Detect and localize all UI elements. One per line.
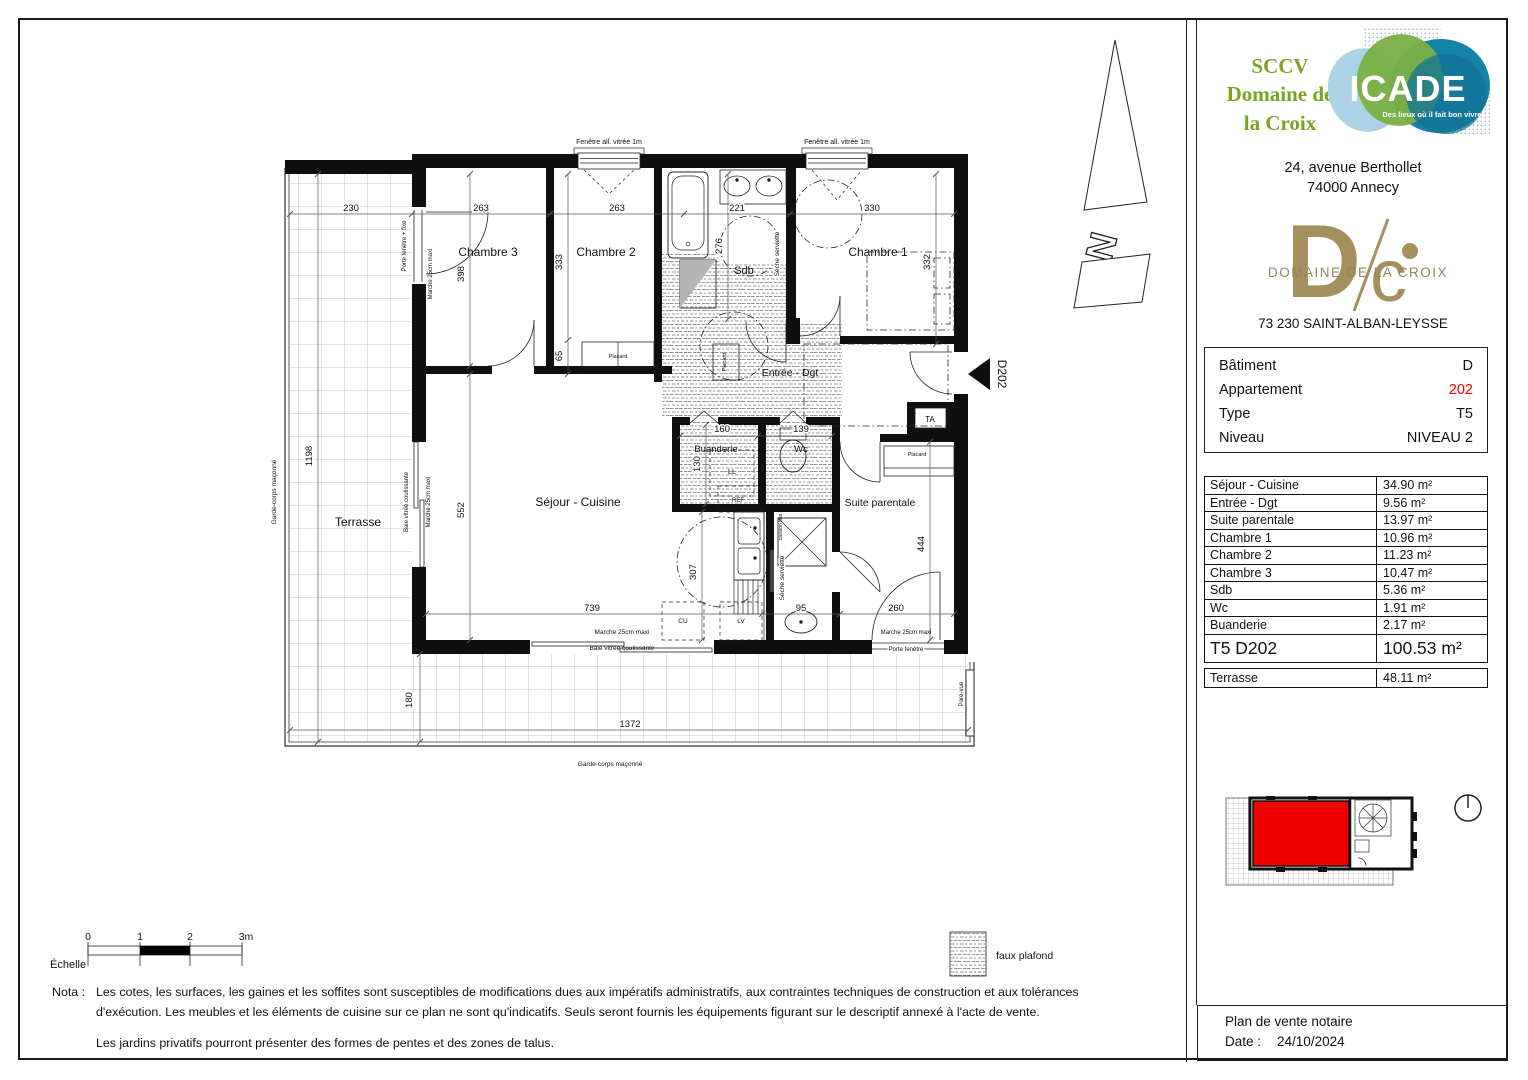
annotation-lv: LV (737, 618, 745, 625)
double-sink-counter (720, 170, 786, 204)
dim: 307 (688, 564, 699, 580)
area-label: Entrée - Dgt (1205, 495, 1377, 512)
unit-info-row: Appartement202 (1205, 378, 1487, 402)
unit-info-row: TypeT5 (1205, 402, 1487, 426)
turning-circle-sejour (677, 517, 767, 607)
unit-info-value: 202 (1449, 378, 1473, 402)
dim: 221 (729, 203, 745, 214)
scale-bar (88, 942, 242, 966)
table-row: T5 D202100.53 m² (1204, 635, 1488, 663)
area-table: Séjour - Cuisine34.90 m²Entrée - Dgt9.56… (1204, 476, 1488, 663)
legend-label: faux plafond (996, 950, 1053, 962)
pare-vue-screen (966, 670, 974, 736)
annotation: caisson bas (778, 513, 784, 540)
room-label-chambre3: Chambre 3 (458, 245, 518, 259)
monogram-d: D (1286, 205, 1361, 313)
unit-info-box: BâtimentDAppartement202TypeT5NiveauNIVEA… (1204, 347, 1488, 453)
brand-wordmark: DOMAINE DE LA CROIX (1268, 265, 1448, 280)
area-value: 1.91 m² (1377, 600, 1425, 617)
dim: 739 (584, 603, 600, 614)
scale-tick: 1 (137, 931, 143, 943)
room-label-entree: Entrée - Dgt (762, 367, 819, 379)
unit-info-label: Appartement (1219, 378, 1302, 402)
dim: 260 (888, 603, 904, 614)
dim: 333 (554, 254, 565, 270)
annotation: Baie vitrée coulissante (404, 471, 410, 532)
icade-logo: ICADE Des lieux où il fait bon vivre (1328, 28, 1493, 143)
area-label: T5 D202 (1205, 635, 1377, 662)
footer-date-label: Date : (1225, 1034, 1261, 1049)
area-value: 5.36 m² (1377, 582, 1425, 599)
room-label-wc: Wc (794, 444, 808, 455)
annotation: Sèche serviette (779, 555, 786, 600)
scale-tick: 0 (85, 931, 91, 943)
annotation: Garde-corps maçonné (578, 761, 643, 768)
brand-city: 73 230 SAINT-ALBAN-LEYSSE (1196, 316, 1510, 331)
kitchen-sink-unit (734, 512, 764, 580)
dim: 130 (692, 456, 703, 472)
annotation-ref: REF (732, 498, 744, 504)
dim: 552 (456, 502, 467, 518)
dim: 1372 (619, 719, 640, 730)
annotation: Marche 25cm maxi (426, 477, 432, 528)
room-label-sejour: Séjour - Cuisine (535, 495, 621, 509)
dim: 330 (864, 203, 880, 214)
footer-date-value: 24/10/2024 (1277, 1034, 1345, 1049)
towel-radiator (770, 550, 774, 592)
unit-info-value: T5 (1456, 402, 1473, 426)
room-label-chambre2: Chambre 2 (576, 245, 636, 259)
table-row: Séjour - Cuisine34.90 m² (1204, 476, 1488, 495)
area-label: Wc (1205, 600, 1377, 617)
project-address: 24, avenue Berthollet 74000 Annecy (1196, 158, 1510, 199)
dim: 398 (456, 266, 467, 282)
annotation: Marche 25cm maxi (595, 629, 650, 636)
annotation-window: Fenêtre all. vitrée 1m (576, 139, 642, 146)
dim: 95 (796, 603, 807, 614)
annotation: Marche 25cm maxi (428, 249, 434, 300)
dim: 332 (922, 254, 933, 270)
dim: 65 (554, 351, 565, 362)
table-row: Entrée - Dgt9.56 m² (1204, 495, 1488, 513)
entrance-arrow (968, 358, 990, 390)
room-label-chambre1: Chambre 1 (848, 245, 908, 259)
dim: 263 (609, 203, 625, 214)
area-value: 10.96 m² (1377, 530, 1432, 547)
area-label: Buanderie (1205, 617, 1377, 634)
unit-info-row: BâtimentD (1205, 354, 1487, 378)
area-label: Sdb (1205, 582, 1377, 599)
footer-box: Plan de vente notaire Date : 24/10/2024 (1197, 1005, 1508, 1061)
room-label-terrasse: Terrasse (335, 515, 381, 529)
area-value: 13.97 m² (1377, 512, 1432, 529)
annotation: Sèche serviette (774, 231, 781, 276)
unit-info-row: NiveauNIVEAU 2 (1205, 426, 1487, 450)
annotation-ll: LL (728, 467, 736, 476)
nota-block: Nota : Les cotes, les surfaces, les gain… (52, 983, 1137, 1054)
domaine-croix-logo: D c DOMAINE DE LA CROIX (1258, 205, 1458, 313)
footer-title: Plan de vente notaire (1225, 1014, 1507, 1029)
annotation: Garde-corps maçonné (271, 459, 278, 524)
terrace-wall-stub (285, 160, 412, 174)
north-arrow: N (1074, 40, 1150, 308)
annotation-placard: Placard (609, 354, 628, 360)
area-label: Séjour - Cuisine (1205, 477, 1377, 494)
area-label: Chambre 3 (1205, 565, 1377, 582)
unit-info-label: Niveau (1219, 426, 1264, 450)
unit-info-value: D (1463, 354, 1473, 378)
orientation-circle (1455, 795, 1481, 821)
dim: 230 (343, 203, 359, 214)
icade-wordmark: ICADE (1349, 68, 1466, 109)
key-plan (1218, 788, 1488, 900)
unit-info-value: NIVEAU 2 (1407, 426, 1473, 450)
annotation: Porte fenêtre + fixe (402, 220, 408, 272)
area-value: 9.56 m² (1377, 495, 1425, 512)
table-row: Chambre 110.96 m² (1204, 530, 1488, 548)
table-row: Buanderie2.17 m² (1204, 617, 1488, 635)
dim: 180 (404, 692, 415, 708)
table-row: Suite parentale13.97 m² (1204, 512, 1488, 530)
scale-tick: 3m (239, 931, 254, 943)
table-row: Chambre 310.47 m² (1204, 565, 1488, 583)
floor-plan: N Chambre 3Chambre 2Chambre 1SdbEntrée -… (22, 22, 1186, 1022)
faux-plafond-swatch (950, 932, 986, 976)
area-label: Chambre 2 (1205, 547, 1377, 564)
annotation-ta: TA (925, 415, 935, 424)
annotation-placard: Placard (722, 353, 728, 372)
annotation-placard: Placard (908, 452, 927, 458)
room-label-buanderie: Buanderie (694, 444, 737, 455)
terrace-table: Terrasse 48.11 m² (1204, 668, 1488, 688)
column-divider (1186, 18, 1187, 1062)
area-value: 2.17 m² (1377, 617, 1425, 634)
dim: 276 (714, 238, 725, 254)
area-value: 10.47 m² (1377, 565, 1432, 582)
terrace-label: Terrasse (1205, 669, 1377, 687)
annotation: Porte fenêtre (889, 647, 924, 653)
room-label-sdb: Sdb (734, 265, 754, 277)
annotation-cu: CU (678, 618, 688, 625)
bathtub (668, 172, 708, 258)
dim: 263 (473, 203, 489, 214)
entrance-tag: D202 (995, 360, 1009, 389)
table-row: Chambre 211.23 m² (1204, 547, 1488, 565)
unit-info-label: Bâtiment (1219, 354, 1276, 378)
terrace-value: 48.11 m² (1377, 669, 1431, 687)
table-row: Wc1.91 m² (1204, 600, 1488, 618)
unit-info-label: Type (1219, 402, 1250, 426)
annotation: Baie vitrée coulissante (589, 645, 654, 652)
table-row: Sdb5.36 m² (1204, 582, 1488, 600)
area-value: 100.53 m² (1377, 635, 1462, 662)
annotation-window: Fenêtre all. vitrée 1m (804, 139, 870, 146)
kitchen-drainer (734, 580, 764, 614)
area-label: Chambre 1 (1205, 530, 1377, 547)
nota-label: Nota : (52, 983, 96, 1054)
dim: 160 (714, 424, 730, 435)
address-line1: 24, avenue Berthollet (1196, 158, 1510, 178)
annotation: Pare-vue (959, 681, 965, 706)
address-line2: 74000 Annecy (1196, 178, 1510, 198)
icade-tagline: Des lieux où il fait bon vivre (1382, 110, 1481, 119)
area-value: 11.23 m² (1377, 547, 1431, 564)
table-row: Terrasse 48.11 m² (1204, 668, 1488, 688)
area-value: 34.90 m² (1377, 477, 1432, 494)
nota-paragraph-1: Les cotes, les surfaces, les gaines et l… (96, 983, 1136, 1022)
scale-tick: 2 (187, 931, 193, 943)
room-label-suite: Suite parentale (845, 497, 916, 509)
keyplan-unit-highlight (1253, 801, 1349, 866)
scale-label: Échelle (50, 958, 86, 971)
annotation: Marche 25cm maxi (881, 630, 932, 636)
plan-sheet: N Chambre 3Chambre 2Chambre 1SdbEntrée -… (0, 0, 1528, 1080)
dim: 444 (916, 536, 927, 552)
closet-suite (884, 446, 954, 476)
dim: 139 (793, 424, 809, 435)
nota-paragraph-2: Les jardins privatifs pourront présenter… (96, 1034, 1136, 1054)
bed-chambre1 (867, 252, 954, 330)
dim: 1198 (304, 446, 315, 466)
area-label: Suite parentale (1205, 512, 1377, 529)
